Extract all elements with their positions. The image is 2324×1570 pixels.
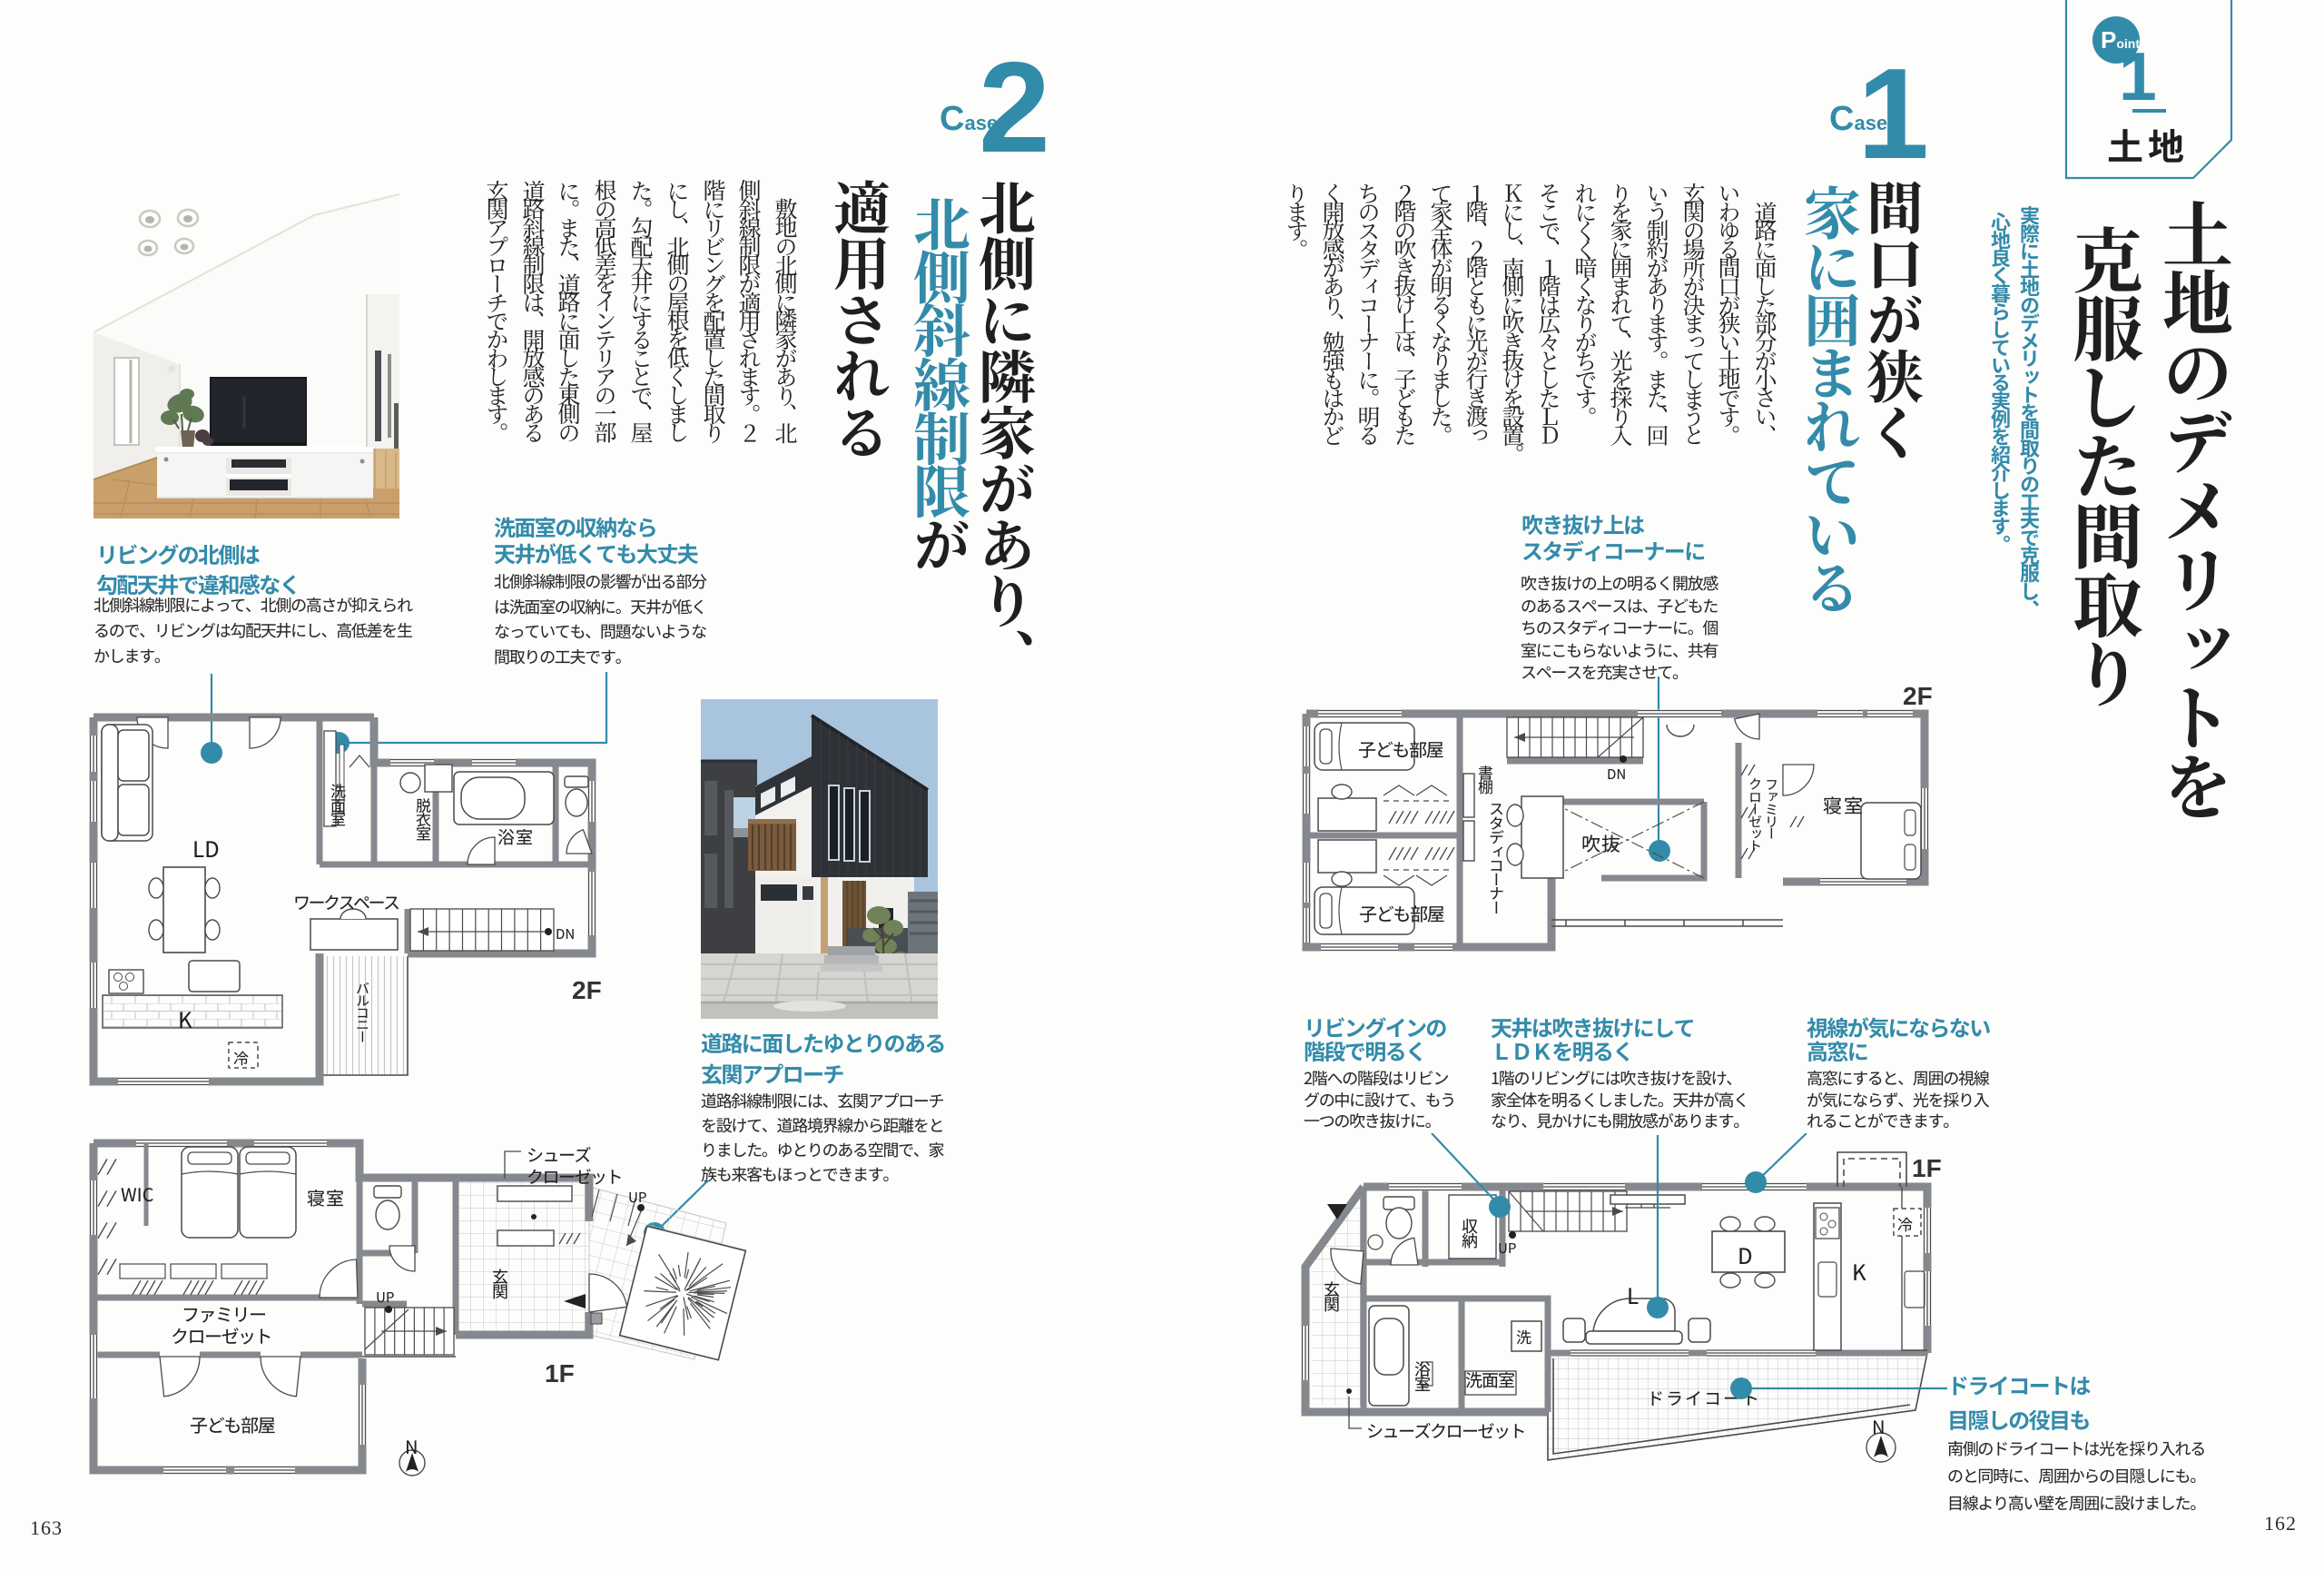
svg-text:2F: 2F [1903,679,1933,713]
svg-text:UP: UP [376,1288,394,1307]
svg-text:UP: UP [1498,1239,1516,1258]
svg-text:1F: 1F [545,1354,575,1390]
svg-text:DN: DN [1607,765,1626,784]
svg-text:DN: DN [556,924,575,943]
svg-text:1F: 1F [1912,1149,1942,1185]
svg-text:2F: 2F [572,971,602,1007]
